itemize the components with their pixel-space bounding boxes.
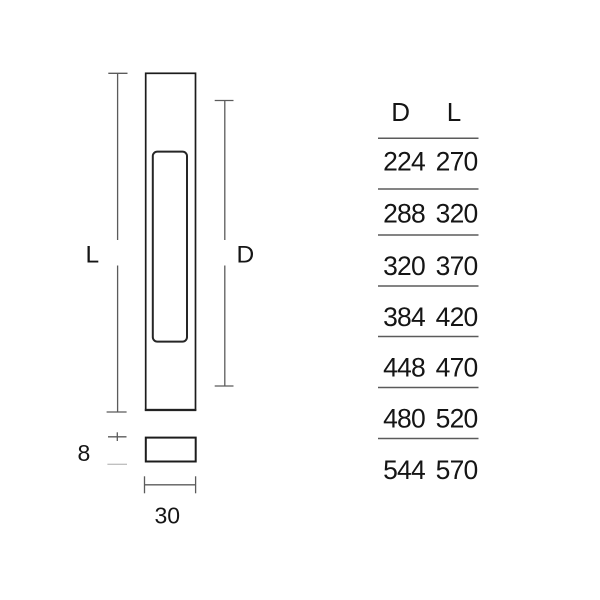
svg-text:370: 370 bbox=[436, 251, 478, 281]
svg-text:224: 224 bbox=[383, 146, 425, 176]
svg-text:D: D bbox=[237, 242, 255, 269]
svg-text:470: 470 bbox=[436, 352, 478, 382]
svg-text:544: 544 bbox=[383, 455, 425, 485]
svg-text:30: 30 bbox=[155, 502, 181, 528]
svg-text:570: 570 bbox=[436, 455, 478, 485]
svg-text:L: L bbox=[86, 241, 100, 268]
svg-text:448: 448 bbox=[383, 352, 425, 382]
svg-text:480: 480 bbox=[383, 403, 425, 433]
svg-text:320: 320 bbox=[436, 199, 478, 229]
svg-text:D: D bbox=[391, 97, 410, 127]
svg-text:384: 384 bbox=[383, 302, 425, 332]
svg-text:L: L bbox=[447, 97, 461, 127]
svg-text:288: 288 bbox=[383, 199, 425, 229]
svg-text:420: 420 bbox=[436, 302, 478, 332]
svg-text:8: 8 bbox=[78, 440, 91, 466]
svg-text:270: 270 bbox=[436, 146, 478, 176]
svg-text:320: 320 bbox=[383, 251, 425, 281]
svg-text:520: 520 bbox=[436, 403, 478, 433]
